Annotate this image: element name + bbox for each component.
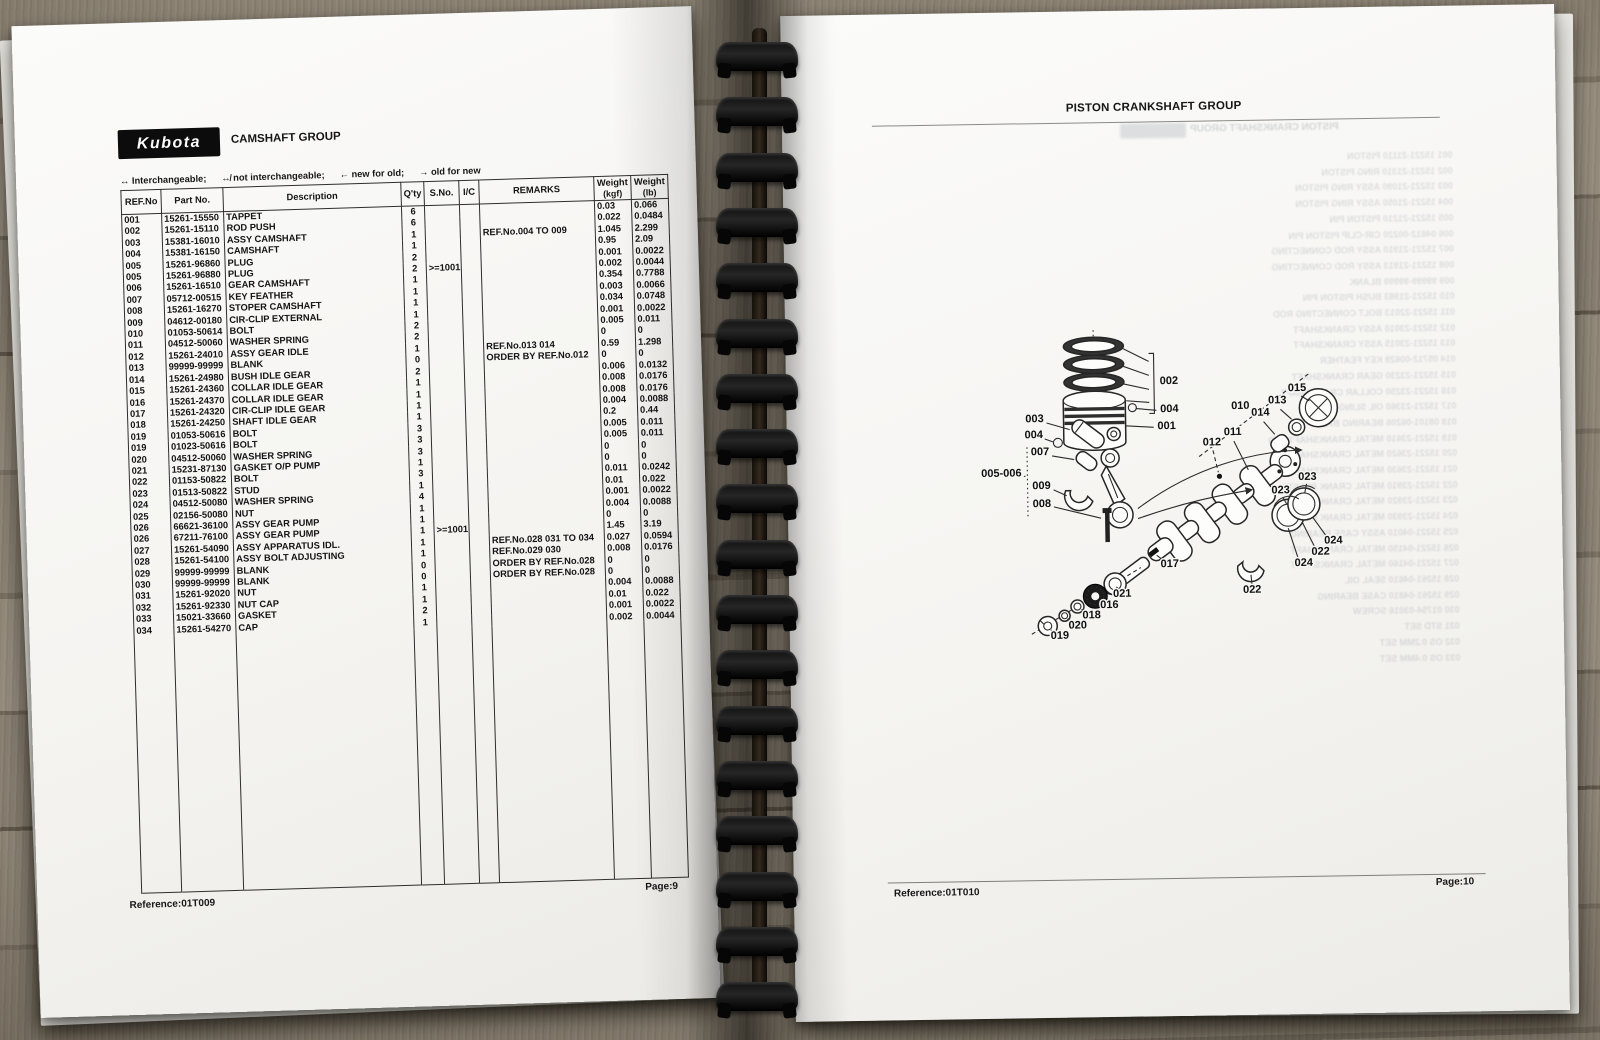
table-row: 00705712-00515KEY FEATHER10.0030.0066 xyxy=(124,279,671,307)
footer-rule xyxy=(888,873,1486,883)
diagram-callout: 004 xyxy=(1024,429,1043,441)
right-page: PISTON CRANKSHAFT GROUP PISTON CRANKSHAF… xyxy=(780,4,1570,1022)
comb-loop xyxy=(716,650,798,679)
table-row: 02004512-50060WASHER SPRING300 xyxy=(129,438,676,466)
comb-loop xyxy=(716,982,798,1011)
table-row: 03215261-92330NUT CAP10.010.022 xyxy=(133,587,680,615)
ghost-line: 019 15221-23610 METAL CRANKSHAFT STD xyxy=(1135,430,1457,451)
ghost-line: 031 STD SET xyxy=(1138,619,1460,640)
table-row: 00115261-15550TAPPET60.030.066 xyxy=(122,198,669,226)
ghost-line: 015 15221-23230 GEAR CRANKSHAFT xyxy=(1134,367,1456,388)
comb-loop xyxy=(716,263,798,292)
table-row: 00315381-16010ASSY CAMSHAFT1REF.No.004 T… xyxy=(122,222,669,250)
diagram-callout: 011 xyxy=(1224,426,1242,438)
table-row: 02667211-76100ASSY GEAR PUMP1>=10011.453… xyxy=(131,518,678,546)
diagram-callout: 005-006 xyxy=(981,467,1022,480)
ghost-line: 030 01754-03016 SCREW xyxy=(1137,603,1459,624)
diagram-callout: 014 xyxy=(1251,406,1270,418)
ghost-line: 026 15221-04150 METAL CRANKSHAFT xyxy=(1137,540,1459,561)
col-sno: S.No. xyxy=(424,181,460,206)
col-ic: I/C xyxy=(459,180,480,205)
comb-loop xyxy=(716,927,798,956)
table-row: 01399999-99999BLANK0ORDER BY REF.No.0120… xyxy=(126,347,673,375)
ghost-line: 021 15221-23630 METAL CRANKSHAFT 0.4 xyxy=(1135,462,1457,483)
ghost-line: 010 15221-21983 BUSH PISTON PIN xyxy=(1133,289,1455,310)
ghost-line: 012 15221-23010 ASSY CRANKSHAFT xyxy=(1133,320,1455,341)
table-row: 01215261-24010ASSY GEAR IDLE1REF.No.013 … xyxy=(126,336,673,364)
table-row: 01715261-24320CIR-CLIP IDLE GEAR10.0040.… xyxy=(127,393,674,421)
ghost-line: 014 05712-00628 KEY FEATHER xyxy=(1134,352,1456,373)
rod-bolt xyxy=(1103,508,1113,542)
left-page: Kubota CAMSHAFT GROUP ↔ Interchangeable;… xyxy=(11,6,720,1018)
diagram-callout: 022 xyxy=(1243,584,1262,596)
table-row: 01515261-24360COLLAR IDLE GEAR10.0080.01… xyxy=(127,370,674,398)
table-row: 00415381-16150CAMSHAFT10.952.09 xyxy=(123,233,670,261)
table-row: 02502156-50080NUT10.0040.0088 xyxy=(130,495,677,523)
assembly-arrow xyxy=(1138,490,1252,519)
piston-rings xyxy=(1063,337,1124,392)
parts-table-body: 00115261-15550TAPPET60.030.06600215261-1… xyxy=(122,198,681,637)
circlip xyxy=(1128,404,1136,412)
ghost-line: 011 15221-22013 BOLT CONNECTING ROD xyxy=(1133,305,1455,326)
table-row: 00515261-96880PLUG2>=10010.0020.0044 xyxy=(123,256,670,284)
diagram-callout: 003 xyxy=(1025,413,1044,425)
ghost-line: 003 15221-21090 ASSY RING PISTON xyxy=(1131,179,1453,200)
comb-loop xyxy=(716,97,798,126)
table-row: 03115261-92020NUT10.0040.0088 xyxy=(133,575,680,603)
table-row: 00615261-16510GEAR CAMSHAFT10.3540.7788 xyxy=(124,267,671,295)
ghost-line: 002 15221-21310 RING PISTON xyxy=(1131,163,1453,184)
table-row: 02201153-50822BOLT30.0110.0242 xyxy=(129,461,676,489)
legend-item: ← new for old; xyxy=(339,168,404,180)
piston-pin xyxy=(1069,417,1107,451)
diagram-callout: 023 xyxy=(1298,471,1317,483)
connecting-rod xyxy=(1101,449,1133,528)
diagram-callout: 017 xyxy=(1161,558,1180,570)
comb-loop xyxy=(716,153,798,182)
ghost-line: 018 08101-06206 BEARING BALL xyxy=(1135,415,1457,436)
circlip xyxy=(1053,438,1062,447)
page-title: PISTON CRANKSHAFT GROUP xyxy=(1034,99,1274,115)
diagram-callout: 016 xyxy=(1100,599,1119,611)
diagram-callout: 007 xyxy=(1031,446,1050,458)
diagram-callout: 018 xyxy=(1082,609,1101,621)
crankshaft xyxy=(1100,446,1302,596)
diagram-callout: 002 xyxy=(1160,375,1179,387)
rod-bush xyxy=(1074,449,1099,473)
col-weight-kgf: Weight (kgf) xyxy=(594,176,632,201)
ghost-line: 022 15221-23910 METAL CRANK PIN STD xyxy=(1136,477,1458,498)
table-row: 02666621-36100ASSY GEAR PUMP100 xyxy=(131,507,678,535)
parts-table: REF.No Part No. Description Q'ty S.No. I… xyxy=(120,174,689,893)
table-row: 03415261-54270CAP10.0020.0044 xyxy=(134,609,681,637)
dowel-pin xyxy=(1217,474,1222,479)
ghost-line: 025 15221-04010 ASSY CASE BEARING xyxy=(1136,524,1458,545)
ghost-line: 016 15221-23250 COLLAR CRANKSHAFT xyxy=(1134,383,1456,404)
ghost-line: 020 15221-23620 METAL CRANKSHAFT 0.2 xyxy=(1135,446,1457,467)
table-row: 01815261-24250SHAFT IDLE GEAR10.20.44 xyxy=(128,404,675,432)
ghost-line: 033 OS 0.4MM SET xyxy=(1138,650,1460,671)
piston xyxy=(1063,391,1126,451)
legend-item: ↔ Interchangeable; xyxy=(120,174,207,187)
ghost-line: 017 15221-23360 OIL SLINGER xyxy=(1134,399,1456,420)
comb-loop xyxy=(716,761,798,790)
diagram-callout: 024 xyxy=(1324,534,1343,546)
table-row: 02301513-50822STUD10.010.022 xyxy=(130,473,677,501)
table-row: 02999999-99999BLANK0ORDER BY REF.No.0280… xyxy=(132,552,679,580)
ghost-line: 008 15221-21913 ASSY ROD CONNECTING xyxy=(1132,258,1454,279)
table-row: 02115231-87130GASKET O/P PUMP100 xyxy=(129,450,676,478)
ghost-line: 004 15221-21050 ASSY RING PISTON xyxy=(1131,195,1453,216)
photo-of-manual: { "colors": { "page": "#f8f8f5", "ink": … xyxy=(0,0,1600,1040)
table-row: 03315021-33660GASKET20.0010.0022 xyxy=(133,598,680,626)
legend-item: ↮ not interchangeable; xyxy=(221,170,325,183)
table-row: 03099999-99999BLANK0ORDER BY REF.No.0280… xyxy=(132,564,679,592)
col-qty: Q'ty xyxy=(401,182,425,207)
diagram-callout: 001 xyxy=(1157,420,1176,432)
rear-crank-parts xyxy=(1198,372,1338,456)
comb-loop xyxy=(716,540,798,569)
diagram-callout: 015 xyxy=(1288,382,1307,394)
table-header-row: REF.No Part No. Description Q'ty S.No. I… xyxy=(121,174,668,214)
col-weight-lb: Weight (lb) xyxy=(631,174,669,199)
main-bearing-case xyxy=(1272,486,1321,532)
bearing-shell xyxy=(1065,490,1093,511)
footer-page-number: Page:9 xyxy=(645,881,678,893)
diagram-callout: 009 xyxy=(1032,480,1051,492)
table-row: 01901023-50616BOLT30.0050.011 xyxy=(128,427,675,455)
comb-loop xyxy=(716,706,798,735)
col-desc: Description xyxy=(223,182,402,211)
diagram-callout: 008 xyxy=(1033,498,1052,510)
leader-lines xyxy=(1017,345,1328,634)
crank-key xyxy=(1148,547,1159,557)
table-row: 02404512-50080WASHER SPRING40.0010.0022 xyxy=(130,484,677,512)
ghost-line: 007 15221-21910 ASSY ROD CONNECTING xyxy=(1132,242,1454,263)
table-row: 02815261-54100ASSY BOLT ADJUSTING1REF.No… xyxy=(132,541,679,569)
exploded-diagram: 002004001003004007005-006009008010011012… xyxy=(965,300,1511,668)
interchangeability-legend: ↔ Interchangeable; ↮ not interchangeable… xyxy=(120,165,481,186)
diagram-callout: 023 xyxy=(1271,484,1290,496)
not-interchangeable-arrow-icon: ↮ xyxy=(221,173,231,183)
diagram-callout: 024 xyxy=(1295,557,1314,569)
comb-loop xyxy=(716,484,798,513)
col-remarks: REMARKS xyxy=(479,177,595,204)
col-part: Part No. xyxy=(161,188,224,214)
diagram-callout: 010 xyxy=(1231,400,1250,412)
legend-item: → old for new xyxy=(419,165,481,177)
ghost-line: 028 15261-04610 SEAL OIL xyxy=(1137,572,1459,593)
table-row: 00904612-00180CIR-CLIP EXTERNAL10.0010.0… xyxy=(125,302,672,330)
diagram-callout: 019 xyxy=(1051,630,1070,642)
ghost-line: 005 15221-21210 PISTON PIN xyxy=(1131,210,1453,231)
table-empty-extension xyxy=(134,621,688,893)
footer-reference: Reference:01T009 xyxy=(129,898,215,912)
ghost-line: 009 99999-99999 BLANK xyxy=(1132,273,1454,294)
ghost-line: 006 04612-00220 CIR-CLIP PISTON PIN xyxy=(1132,226,1454,247)
comb-loop xyxy=(716,595,798,624)
diagram-callout: 022 xyxy=(1311,546,1330,558)
interchangeable-arrow-icon: ↔ xyxy=(120,176,130,186)
ghost-line: 029 15261-04810 CASE BEARING xyxy=(1137,587,1459,608)
comb-loop xyxy=(716,319,798,348)
table-row: 00515261-96860PLUG20.0010.0022 xyxy=(123,244,670,272)
ghost-line: 013 15221-23015 ASSY CRANKSHAFT xyxy=(1133,336,1455,357)
ghost-show-through-text: 001 15221-21110 PISTON002 15221-21310 RI… xyxy=(1130,148,1460,671)
header-rule xyxy=(872,117,1440,127)
comb-loop xyxy=(716,374,798,403)
comb-loop xyxy=(716,816,798,845)
assembly-arrow xyxy=(1137,450,1302,509)
ghost-line: 024 15221-23930 METAL CRANK PIN 0.4 xyxy=(1136,509,1458,530)
diagram-callout: 020 xyxy=(1068,619,1087,631)
ghost-line: 023 15221-23920 METAL CRANK PIN 0.2 xyxy=(1136,493,1458,514)
diagram-callouts: 002004001003004007005-006009008010011012… xyxy=(980,372,1345,643)
table-row: 01615261-24370COLLAR IDLE GEAR10.0080.01… xyxy=(127,381,674,409)
table-row: 01415261-24980BUSH IDLE GEAR20.0060.0132 xyxy=(126,359,673,387)
comb-loop xyxy=(716,208,798,237)
comb-loop xyxy=(716,42,798,71)
footer-page-number: Page:10 xyxy=(1436,876,1475,888)
ghost-line: 027 15221-04160 METAL CRANKSHAFT xyxy=(1137,556,1459,577)
comb-loop xyxy=(716,429,798,458)
table-row: 01104512-50060WASHER SPRING200 xyxy=(125,324,672,352)
ghost-page-title: PISTON CRANKSHAFT GROUP xyxy=(1190,121,1339,134)
comb-loop xyxy=(716,872,798,901)
table-row: 01001053-50614BOLT20.0050.011 xyxy=(125,313,672,341)
diagram-callout: 012 xyxy=(1203,436,1222,448)
front-crank-parts xyxy=(1031,568,1142,636)
ghost-kubota-logo xyxy=(1120,123,1186,139)
ghost-line: 001 15221-21110 PISTON xyxy=(1130,148,1452,169)
comb-binding xyxy=(716,0,800,1040)
page-title: CAMSHAFT GROUP xyxy=(231,131,341,146)
col-ref: REF.No xyxy=(121,189,162,214)
diagram-callout: 004 xyxy=(1160,403,1179,415)
crank-pin-shell xyxy=(1238,562,1265,582)
old-for-new-arrow-icon: → xyxy=(419,167,429,177)
table-row: 00215261-15110ROD PUSH60.0220.0484 xyxy=(122,210,669,238)
piston-crankshaft-drawing: 002004001003004007005-006009008010011012… xyxy=(965,300,1511,668)
footer-reference: Reference:01T010 xyxy=(894,887,980,899)
diagram-callout: 021 xyxy=(1113,588,1132,600)
table-row: 01901053-50616BOLT30.0050.011 xyxy=(128,416,675,444)
ghost-line: 032 OS 0.2MM SET xyxy=(1138,634,1460,655)
diagram-callout: 013 xyxy=(1268,394,1287,406)
table-row: 02715261-54090ASSY APPARATUS IDL.1REF.No… xyxy=(131,530,678,558)
kubota-logo: Kubota xyxy=(119,128,220,158)
table-row: 00815261-16270STOPER CAMSHAFT10.0340.074… xyxy=(124,290,671,318)
new-for-old-arrow-icon: ← xyxy=(339,169,349,179)
